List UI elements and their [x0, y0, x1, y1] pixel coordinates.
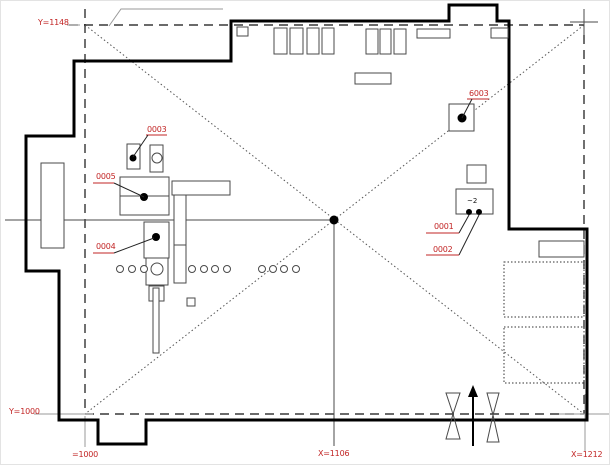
mounting-hole-row — [117, 266, 300, 273]
label-component-0002[interactable]: 0002 — [433, 245, 453, 254]
dotted-zone-1 — [504, 262, 584, 317]
panel-outline — [26, 5, 587, 444]
left-tall-rect — [41, 163, 64, 248]
leader-0001 — [459, 215, 469, 233]
dotted-zone-2 — [504, 327, 584, 383]
center-reference-point[interactable] — [330, 216, 339, 225]
module-annotation-text: ~2 — [467, 198, 477, 205]
cad-drawing-canvas[interactable]: Y=1148 Y=1000 =1000 X=1106 X=1212 0003 0… — [0, 0, 610, 465]
fiducial-bowtie-left — [446, 393, 460, 439]
label-y-bottom: Y=1000 — [9, 407, 40, 416]
top-edge-thin-profile — [109, 9, 223, 26]
label-y-top: Y=1148 — [38, 18, 69, 27]
right-edge-rect — [539, 241, 584, 257]
top-slot-group-right — [366, 29, 406, 54]
top-slot-group-left — [274, 28, 334, 54]
top-center-rect — [355, 73, 391, 84]
label-x-origin: =1000 — [72, 450, 98, 459]
component-0003-shape[interactable] — [127, 144, 163, 172]
component-6003-shape[interactable] — [449, 104, 474, 131]
small-square-marker — [187, 298, 195, 306]
label-x-center: X=1106 — [318, 449, 349, 458]
corner-cross-mark — [570, 9, 598, 35]
label-component-0001[interactable]: 0001 — [434, 222, 454, 231]
top-right-rect-a — [417, 29, 450, 38]
component-0005-shape[interactable] — [120, 177, 169, 215]
drawing-layer — [1, 1, 610, 465]
fiducial-arrow-mark — [468, 385, 478, 446]
top-right-rect-b — [491, 28, 508, 38]
label-component-0004[interactable]: 0004 — [96, 242, 116, 251]
label-component-0003[interactable]: 0003 — [147, 125, 167, 134]
leader-0002 — [459, 215, 479, 255]
fiducial-bowtie-right — [487, 393, 499, 442]
right-small-square — [467, 165, 486, 183]
label-component-6003[interactable]: 6003 — [469, 89, 489, 98]
label-component-0005[interactable]: 0005 — [96, 172, 116, 181]
top-small-square — [237, 27, 248, 36]
label-x-right: X=1212 — [571, 450, 602, 459]
component-0004-shape[interactable] — [144, 222, 169, 353]
